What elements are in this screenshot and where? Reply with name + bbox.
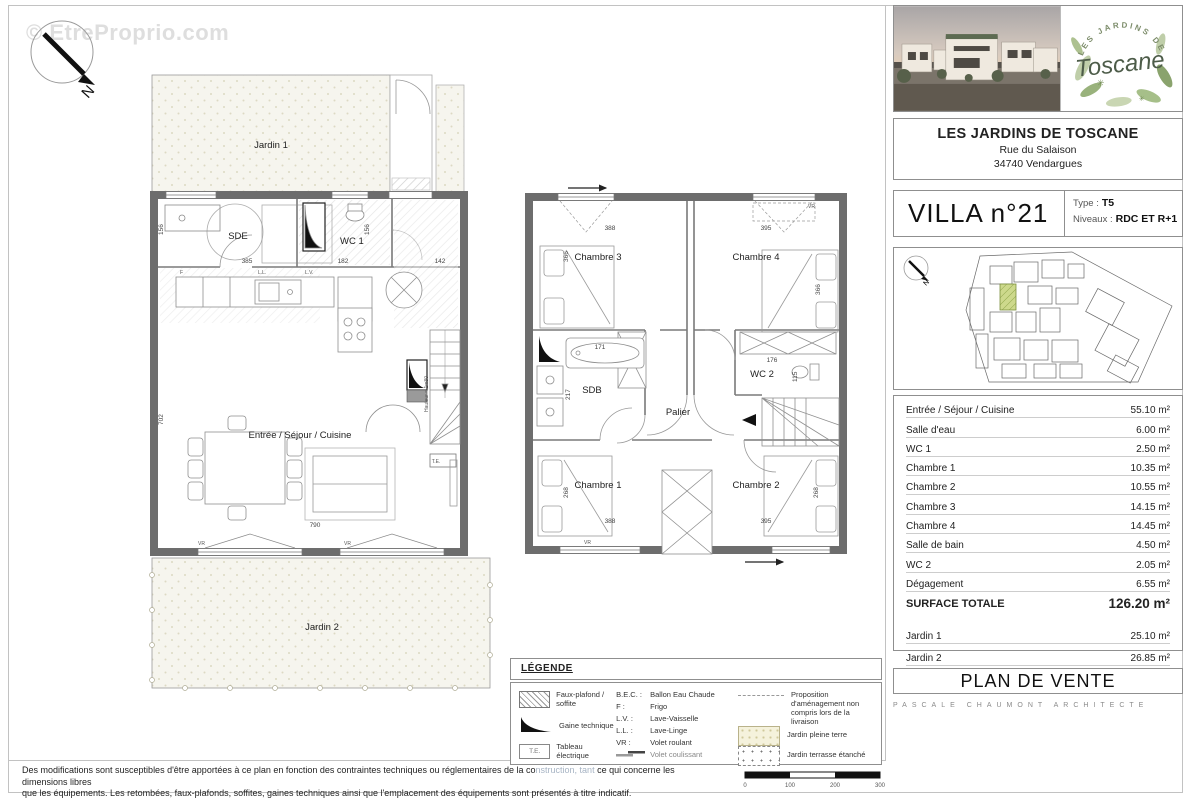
legend-col-symbols: Faux-plafond / soffite Gaine technique T…: [519, 690, 616, 760]
svg-text:790: 790: [310, 522, 321, 529]
legend-label: Lave-Vaisselle: [650, 714, 698, 723]
svg-text:L.L.: L.L.: [258, 270, 266, 276]
row-value: 6.55 m²: [1136, 579, 1170, 590]
proposition-dashed-icon: [738, 695, 784, 696]
svg-text:268: 268: [563, 487, 570, 498]
row-label: Chambre 1: [906, 463, 955, 474]
legend-label: Tableau électrique: [556, 742, 616, 760]
svg-text:395: 395: [761, 518, 772, 525]
villa-type-value: T5: [1102, 197, 1114, 209]
row-value: 10.35 m²: [1131, 463, 1170, 474]
villa-title: VILLA n°21: [894, 191, 1064, 236]
svg-text:388: 388: [605, 225, 616, 232]
row-value: 26.85 m²: [1131, 653, 1170, 664]
row-label: Chambre 4: [906, 521, 955, 532]
svg-text:VR: VR: [808, 204, 815, 210]
svg-text:142: 142: [435, 258, 446, 265]
legend-key: L.V. :: [616, 714, 650, 723]
table-row: Jardin 226.85 m²: [906, 644, 1170, 666]
table-row: WC 12.50 m²: [906, 438, 1170, 457]
legend-label: Lave-Linge: [650, 726, 687, 735]
legend-label: Ballon Eau Chaude: [650, 690, 715, 699]
row-value: 6.00 m²: [1136, 425, 1170, 436]
header-media-box: LES JARDINS DE Toscane ✳ ✳: [893, 5, 1183, 112]
row-value: 10.55 m²: [1131, 482, 1170, 493]
svg-text:Hauteur = 1m80: Hauteur = 1m80: [424, 376, 430, 412]
villa-niveaux-value: RDC ET R+1: [1116, 213, 1178, 225]
legend-key: VR :: [616, 738, 650, 747]
legend-title: LÉGENDE: [521, 663, 573, 674]
table-row: Dégagement6.55 m²: [906, 573, 1170, 592]
svg-text:156: 156: [158, 224, 165, 235]
svg-text:T.E.: T.E.: [432, 459, 441, 465]
svg-text:217: 217: [565, 389, 572, 400]
total-value: 126.20 m²: [1108, 596, 1170, 611]
disclaimer-line2: que les équipements. Les retombées, faux…: [22, 788, 682, 800]
legend-key: F :: [616, 702, 650, 711]
table-row: Chambre 110.35 m²: [906, 457, 1170, 476]
row-value: 2.05 m²: [1136, 560, 1170, 571]
row-value: 14.45 m²: [1131, 521, 1170, 532]
svg-text:VR: VR: [344, 541, 351, 547]
legend-label: Frigo: [650, 702, 667, 711]
villa-specs: Type :T5 Niveaux :RDC ET R+1: [1064, 191, 1182, 236]
plan-r1: VR: [525, 188, 847, 562]
legend-label: Proposition d'aménagement non compris lo…: [791, 690, 875, 726]
row-label: Dégagement: [906, 579, 963, 590]
table-row: Salle de bain4.50 m²: [906, 534, 1170, 553]
tableau-electrique-icon: T.E.: [519, 744, 550, 759]
svg-text:Chambre 3: Chambre 3: [575, 252, 622, 263]
legend-col-areas: Proposition d'aménagement non compris lo…: [738, 690, 875, 760]
svg-text:Chambre 2: Chambre 2: [733, 480, 780, 491]
svg-text:Jardin 2: Jardin 2: [305, 622, 339, 633]
svg-text:N: N: [922, 279, 931, 288]
north-compass: N: [31, 21, 98, 102]
svg-text:VR: VR: [584, 540, 591, 546]
gaine-technique-icon: [519, 716, 553, 734]
toscane-logo: LES JARDINS DE Toscane ✳ ✳: [1061, 6, 1182, 111]
svg-text:395: 395: [761, 225, 772, 232]
svg-text:702: 702: [158, 414, 165, 425]
disclaimer-text: Des modifications sont susceptibles d'êt…: [22, 765, 682, 800]
svg-text:Jardin 1: Jardin 1: [254, 140, 288, 151]
legend-label: Gaine technique: [559, 721, 614, 730]
architect-name: PASCALE CHAUMONT ARCHITECTE: [893, 702, 1183, 709]
villa-type-label: Type :: [1073, 198, 1099, 209]
svg-text:156: 156: [364, 224, 371, 235]
svg-text:388: 388: [605, 518, 616, 525]
svg-text:Palier: Palier: [666, 407, 690, 418]
plan-de-vente-box: PLAN DE VENTE: [893, 668, 1183, 694]
table-total-row: SURFACE TOTALE126.20 m²: [906, 592, 1170, 617]
villa-niveaux-label: Niveaux :: [1073, 214, 1113, 225]
legend-label: Volet coulissant: [650, 750, 702, 760]
svg-text:300: 300: [875, 783, 886, 789]
surface-table: Entrée / Séjour / Cuisine55.10 m² Salle …: [893, 395, 1183, 651]
row-label: Entrée / Séjour / Cuisine: [906, 405, 1014, 416]
svg-text:N: N: [78, 82, 98, 101]
project-title-block: LES JARDINS DE TOSCANE Rue du Salaison 3…: [893, 118, 1183, 180]
table-row: Chambre 414.45 m²: [906, 515, 1170, 534]
svg-text:100: 100: [785, 783, 796, 789]
row-value: 14.15 m²: [1131, 502, 1170, 513]
row-value: 25.10 m²: [1131, 631, 1170, 642]
legend-label: Faux-plafond / soffite: [556, 690, 616, 708]
siteplan-villa21-highlight: [1000, 284, 1016, 310]
row-value: 55.10 m²: [1131, 405, 1170, 416]
svg-text:171: 171: [595, 344, 606, 351]
row-label: Jardin 2: [906, 653, 942, 664]
table-row: Salle d'eau6.00 m²: [906, 418, 1170, 437]
project-name: LES JARDINS DE TOSCANE: [894, 126, 1182, 142]
scale-bar: 0 100 200 300: [740, 768, 890, 790]
table-row: Chambre 314.15 m²: [906, 495, 1170, 514]
svg-text:VR: VR: [198, 541, 205, 547]
disclaimer-faded: nstruction, tant: [536, 765, 595, 775]
row-label: Salle d'eau: [906, 425, 955, 436]
legend-label: Jardin terrasse étanché: [787, 750, 865, 759]
svg-text:385: 385: [242, 258, 253, 265]
row-label: Chambre 2: [906, 482, 955, 493]
jardin-terrasse-swatch-icon: [738, 746, 780, 766]
row-value: 2.50 m²: [1136, 444, 1170, 455]
legend: LÉGENDE Faux-plafond / soffite Gaine tec…: [510, 658, 882, 765]
legend-label: Jardin pleine terre: [787, 730, 847, 739]
legend-title-box: LÉGENDE: [510, 658, 882, 680]
table-row: Chambre 210.55 m²: [906, 476, 1170, 495]
svg-text:L.V.: L.V.: [305, 270, 313, 276]
project-address-2: 34740 Vendargues: [894, 158, 1182, 170]
svg-text:268: 268: [813, 487, 820, 498]
svg-text:Entrée / Séjour / Cuisine: Entrée / Séjour / Cuisine: [249, 430, 352, 441]
svg-text:115: 115: [792, 371, 799, 382]
total-label: SURFACE TOTALE: [906, 598, 1005, 610]
jardin-pleine-terre-swatch-icon: [738, 726, 780, 746]
residence-photo: [894, 6, 1060, 111]
svg-text:Chambre 1: Chambre 1: [575, 480, 622, 491]
svg-text:Chambre 4: Chambre 4: [733, 252, 780, 263]
legend-key: L.L. :: [616, 726, 650, 735]
svg-text:176: 176: [767, 357, 778, 364]
svg-text:366: 366: [815, 284, 822, 295]
svg-text:WC 2: WC 2: [750, 369, 774, 380]
floor-plans-drawing: N Jardin 1 VR VR: [0, 0, 886, 760]
legend-body: Faux-plafond / soffite Gaine technique T…: [510, 682, 882, 765]
svg-text:SDB: SDB: [582, 385, 602, 396]
faux-plafond-swatch-icon: [519, 691, 550, 708]
svg-text:WC 1: WC 1: [340, 236, 364, 247]
table-row: Entrée / Séjour / Cuisine55.10 m²: [906, 399, 1170, 418]
legend-col-abbreviations: B.E.C. :Ballon Eau Chaude F :Frigo L.V. …: [616, 690, 738, 760]
siteplan-box: N: [893, 247, 1183, 390]
row-label: Chambre 3: [906, 502, 955, 513]
svg-text:0: 0: [743, 783, 747, 789]
table-row: Jardin 125.10 m²: [906, 622, 1170, 644]
volet-coulissant-icon: [616, 750, 646, 758]
svg-text:182: 182: [338, 258, 349, 265]
table-row: WC 22.05 m²: [906, 553, 1170, 572]
plan-de-vente-title: PLAN DE VENTE: [960, 671, 1115, 692]
svg-text:SDE: SDE: [228, 231, 248, 242]
row-label: WC 1: [906, 444, 931, 455]
project-address-1: Rue du Salaison: [894, 144, 1182, 156]
plan-rdc: Jardin 1 VR VR: [150, 75, 493, 691]
row-value: 4.50 m²: [1136, 540, 1170, 551]
svg-text:200: 200: [830, 783, 841, 789]
row-label: Salle de bain: [906, 540, 964, 551]
row-label: WC 2: [906, 560, 931, 571]
svg-text:✳: ✳: [1097, 78, 1105, 88]
disclaimer-line1: Des modifications sont susceptibles d'êt…: [22, 765, 536, 775]
legend-key: B.E.C. :: [616, 690, 650, 699]
svg-text:366: 366: [563, 251, 570, 262]
row-label: Jardin 1: [906, 631, 942, 642]
siteplan-compass: N: [904, 256, 931, 287]
svg-text:F: F: [180, 270, 183, 276]
siteplan-drawing: N: [894, 248, 1182, 389]
svg-text:✳: ✳: [1139, 95, 1145, 103]
villa-block: VILLA n°21 Type :T5 Niveaux :RDC ET R+1: [893, 190, 1183, 237]
legend-label: Volet roulant: [650, 738, 692, 747]
